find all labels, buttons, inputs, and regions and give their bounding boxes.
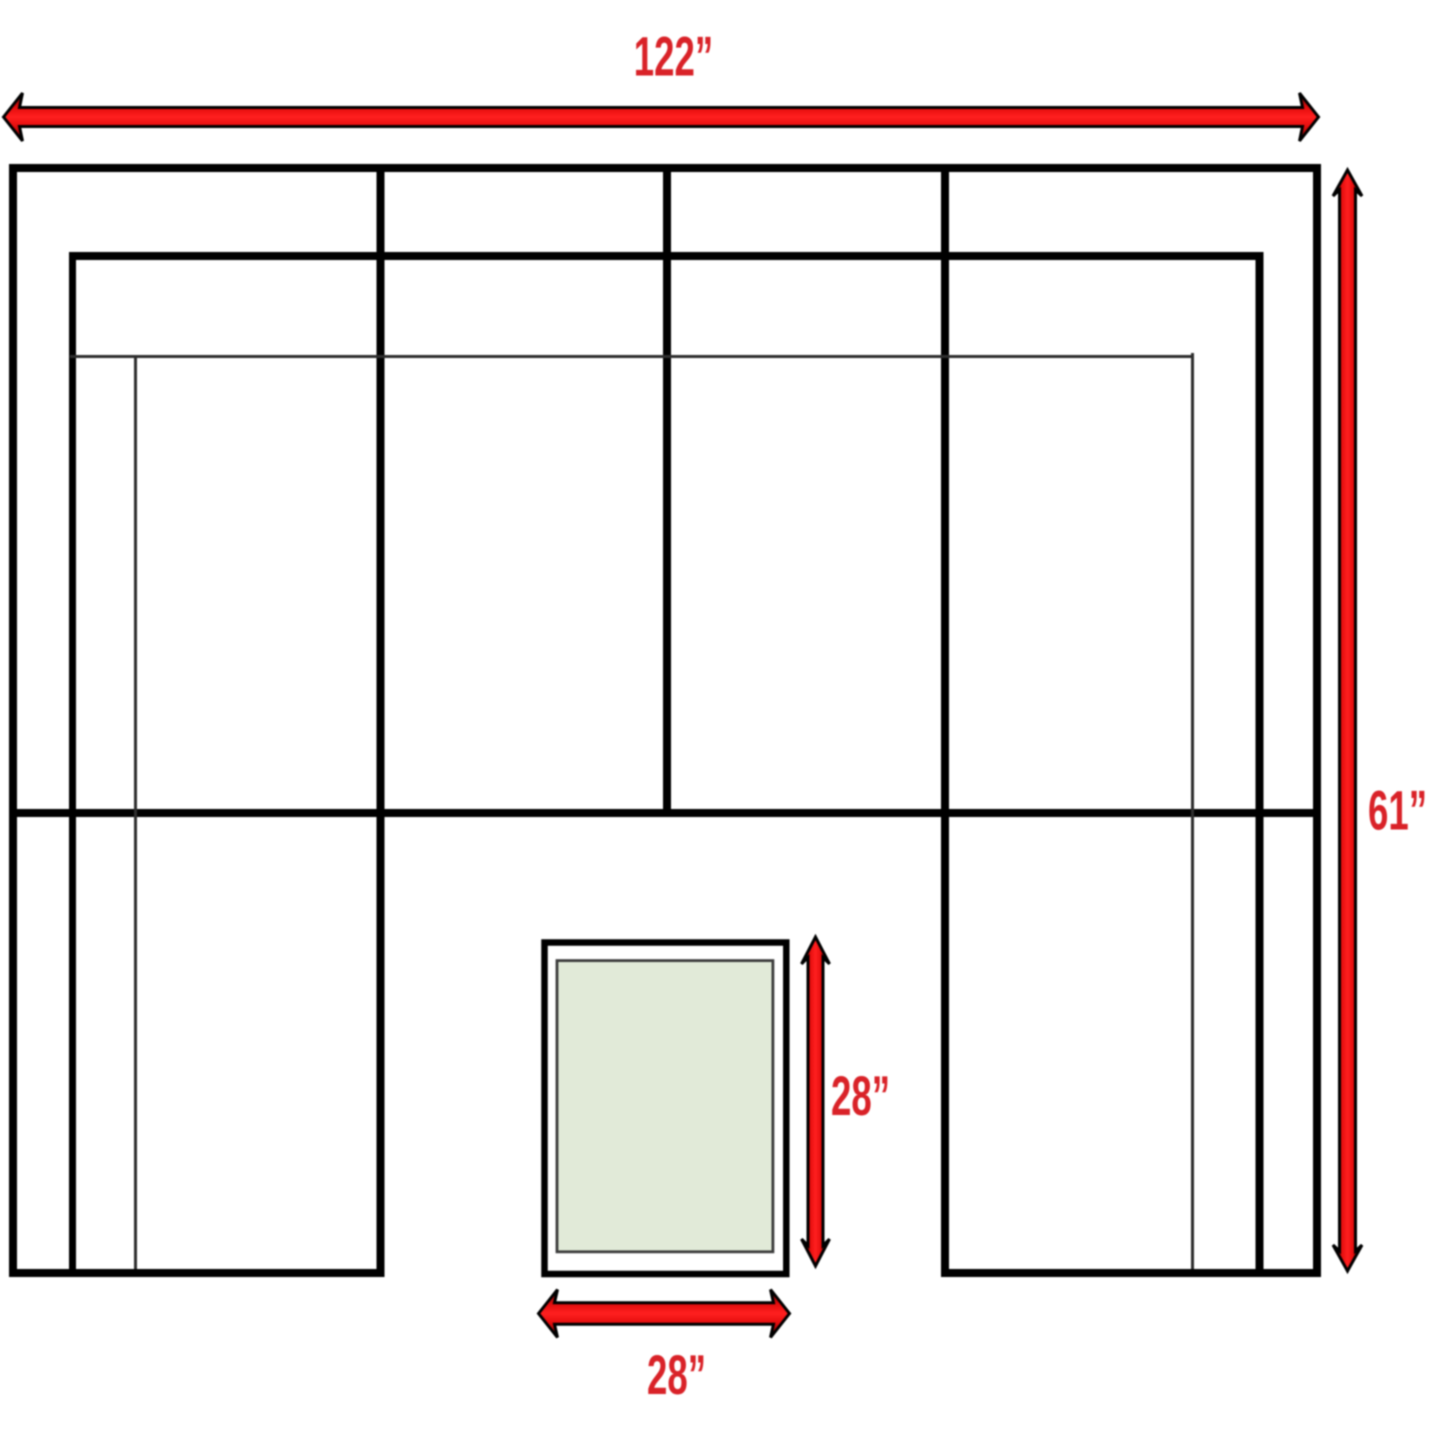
svg-text:28”: 28” <box>647 1343 706 1406</box>
svg-text:122”: 122” <box>634 25 713 88</box>
svg-text:61”: 61” <box>1368 779 1427 842</box>
svg-text:28”: 28” <box>831 1064 890 1127</box>
